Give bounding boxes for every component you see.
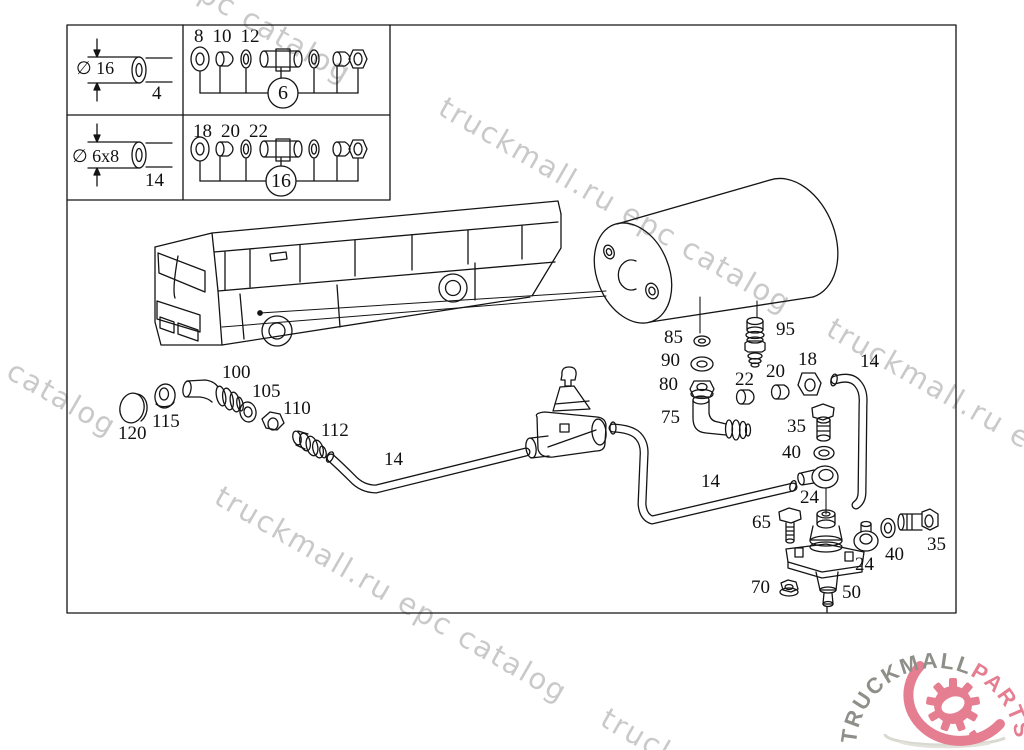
part-105-washer xyxy=(238,401,257,423)
part-label-112: 112 xyxy=(321,421,349,440)
legend-sizes-row1: 8 10 12 xyxy=(194,27,260,46)
legend-group-6: 6 xyxy=(278,83,288,103)
size-10: 10 xyxy=(213,27,232,46)
part-label-18: 18 xyxy=(798,350,817,369)
part-70-nut xyxy=(780,580,798,596)
part-label-110: 110 xyxy=(283,399,311,418)
part-label-80: 80 xyxy=(659,375,678,394)
part-35-banjo-bolt-upper xyxy=(812,404,834,441)
part-label-24: 24 xyxy=(800,488,819,507)
legend-grid xyxy=(67,25,390,200)
size-12: 12 xyxy=(241,27,260,46)
part-label-70: 70 xyxy=(751,578,770,597)
part-label-65: 65 xyxy=(752,513,771,532)
truckmall-parts-logo: TRUCKMALLPARTS xyxy=(840,635,1024,750)
part-label-22: 22 xyxy=(735,370,754,389)
part-label-20: 20 xyxy=(766,362,785,381)
part-label-95: 95 xyxy=(776,320,795,339)
part-90-washer xyxy=(691,357,713,371)
part-40-washer-lower xyxy=(881,519,895,538)
part-label-90: 90 xyxy=(661,351,680,370)
part-label-14: 14 xyxy=(701,472,720,491)
legend-length-14: 14 xyxy=(145,171,164,190)
part-120-cap xyxy=(117,391,147,425)
part-75-elbow-fitting xyxy=(693,396,751,440)
size-20: 20 xyxy=(221,122,240,141)
size-8: 8 xyxy=(194,27,204,46)
part-95-valve-fitting xyxy=(745,318,765,368)
part-20-fitting xyxy=(772,385,790,399)
tank-port-lower xyxy=(644,281,661,300)
part-65-bolt xyxy=(779,508,801,543)
part-24-banjo-lower xyxy=(854,522,878,552)
pressure-regulator-valve xyxy=(525,367,608,459)
part-label-35: 35 xyxy=(787,417,806,436)
part-22-fitting xyxy=(737,390,755,404)
legend-diameter-6x8: ∅ 6x8 xyxy=(72,147,119,165)
part-label-24: 24 xyxy=(855,555,874,574)
part-label-105: 105 xyxy=(252,382,281,401)
tank-port-center xyxy=(618,260,636,290)
part-label-40: 40 xyxy=(885,545,904,564)
part-label-120: 120 xyxy=(118,424,147,443)
air-tank xyxy=(580,178,838,334)
legend-sizes-row2: 18 20 22 xyxy=(193,122,268,141)
catalog-page: truckmall.ru epc catalogtruckmall.ru epc… xyxy=(0,0,1024,750)
hose-14-left xyxy=(325,451,526,489)
part-110-nut xyxy=(262,412,284,430)
part-label-14: 14 xyxy=(860,352,879,371)
part-40-washer-upper xyxy=(814,447,834,460)
size-22: 22 xyxy=(249,122,268,141)
part-label-115: 115 xyxy=(152,412,180,431)
bus-drawing xyxy=(155,201,606,346)
legend-group-16: 16 xyxy=(271,171,291,191)
part-100-elbow xyxy=(182,380,244,413)
part-35-banjo-bolt-lower xyxy=(898,509,938,530)
legend-diameter-16: ∅ 16 xyxy=(76,59,114,77)
size-18: 18 xyxy=(193,122,212,141)
part-label-40: 40 xyxy=(782,443,801,462)
part-85-seal-washer xyxy=(694,336,710,346)
part-18-nut xyxy=(798,373,821,395)
part-label-35: 35 xyxy=(927,535,946,554)
part-label-75: 75 xyxy=(661,408,680,427)
legend-length-4: 4 xyxy=(152,84,162,103)
hose-14-right xyxy=(830,374,863,505)
tank-port-upper xyxy=(602,244,616,261)
part-label-100: 100 xyxy=(222,363,251,382)
part-label-50: 50 xyxy=(842,583,861,602)
part-115-grommet xyxy=(153,382,177,409)
part-label-14: 14 xyxy=(384,450,403,469)
part-label-85: 85 xyxy=(664,328,683,347)
